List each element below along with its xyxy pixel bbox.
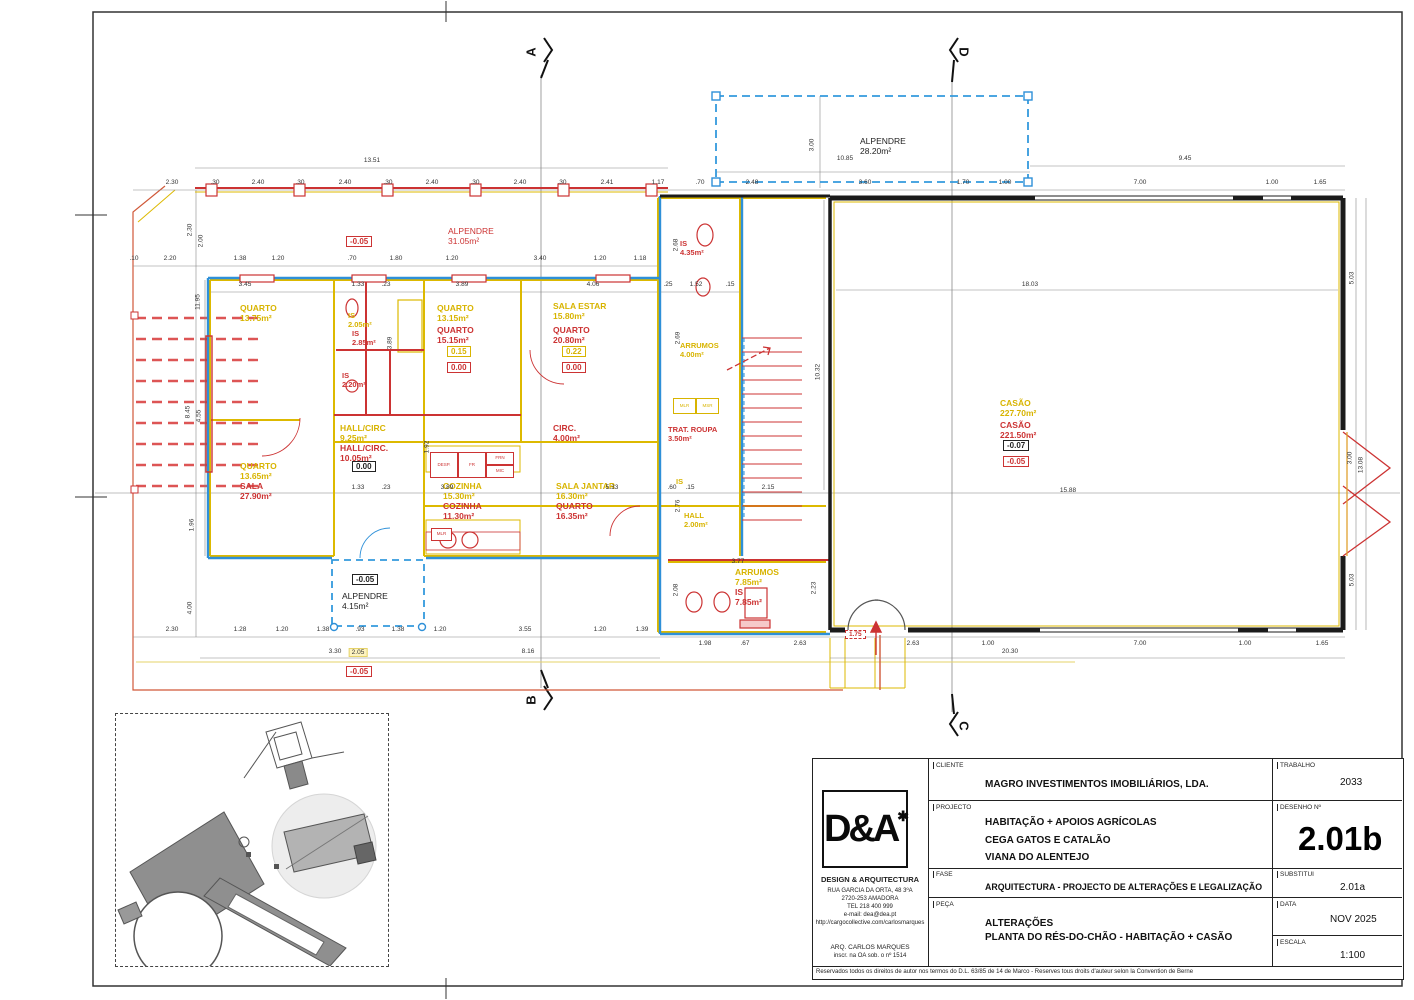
dim-left: 4.00 (187, 602, 194, 615)
window-frames-red (206, 184, 657, 282)
room-label-quarto-1515: QUARTO15.15m² (437, 325, 474, 345)
company-address-1: RUA GARCIA DA ORTA, 48 3ºA (812, 888, 928, 894)
dim-top: 1.00 (999, 179, 1012, 186)
room-label-alpendre-main: ALPENDRE31.05m² (448, 226, 494, 246)
section-marker-c: C (957, 721, 972, 730)
dim-bottom: 1.38 (392, 626, 405, 633)
dim-row3: .25 (663, 281, 672, 288)
dim-inner: 2.69 (675, 332, 682, 345)
field-label-cliente: CLIENTE (933, 762, 963, 769)
dim-overall-1803: 18.03 (1022, 281, 1038, 288)
field-escala: 1:100 (1340, 950, 1365, 961)
field-projecto-1: HABITAÇÃO + APOIOS AGRÍCOLAS (985, 817, 1157, 828)
section-marker-d: D (957, 47, 972, 56)
level-box-m005-a: -0.05 (1003, 456, 1029, 467)
room-label-is-785: IS7.85m² (735, 587, 762, 607)
dim-bottom: 1.98 (699, 640, 712, 647)
dim-mid: 1.33 (352, 484, 365, 491)
room-label-is-220: IS2.20m² (342, 372, 366, 390)
dim-inner: 2.68 (673, 239, 680, 252)
dim-inner: 3.89 (387, 337, 394, 350)
tag-mlr: MLR (673, 398, 696, 414)
field-data: NOV 2025 (1330, 914, 1377, 925)
dim-row3: 4.06 (587, 281, 600, 288)
field-substitui: 2.01a (1340, 882, 1365, 893)
dim-top: 1.65 (1314, 179, 1327, 186)
dim-row3: .23 (381, 281, 390, 288)
dim-bottom: 1.00 (1239, 640, 1252, 647)
drawing-sheet: A D B C QUARTO13.75m² IS2.05m² IS2.85m² … (0, 0, 1414, 1000)
dim-bottom: 1.65 (1316, 640, 1329, 647)
dim-top: .30 (210, 179, 219, 186)
tag-frn: FRN (486, 452, 514, 465)
company-name: DESIGN & ARQUITECTURA (812, 875, 928, 884)
architect-name: ARQ. CARLOS MARQUES (812, 944, 928, 951)
dim-row3: 3.89 (456, 281, 469, 288)
dim-inner: 2.76 (675, 500, 682, 513)
dim-top: 1.17 (652, 179, 665, 186)
room-label-is-small: IS (676, 478, 683, 487)
site-plan-drawing (116, 714, 388, 966)
dim-right: 13.08 (1358, 457, 1365, 473)
dim-bottom: .67 (740, 640, 749, 647)
room-label-quarto-1375: QUARTO13.75m² (240, 303, 277, 323)
dim-bottom: 1.38 (317, 626, 330, 633)
dim-mid: 5.33 (606, 484, 619, 491)
dim-bottom: 1.20 (276, 626, 289, 633)
room-label-casao-new: CASÃO221.50m² (1000, 420, 1036, 440)
dim-row2: 3.40 (534, 255, 547, 262)
level-box-m005-d: -0.05 (346, 666, 372, 677)
logo-star-icon: ✱ (897, 808, 906, 824)
tag-desp: DESP. (430, 452, 458, 478)
dim-top: .30 (383, 179, 392, 186)
dim-left: 2.30 (187, 224, 194, 237)
section-marker-b: B (524, 695, 539, 704)
dim-bottom: 1.28 (234, 626, 247, 633)
field-label-peca: PEÇA (933, 901, 954, 908)
room-label-alpendre-top: ALPENDRE28.20m² (860, 136, 906, 156)
field-peca-2: PLANTA DO RÉS-DO-CHÃO - HABITAÇÃO + CASÃ… (985, 932, 1232, 943)
tag-mlr-2: MLR (431, 528, 452, 541)
dim-right: 5.03 (1349, 272, 1356, 285)
company-logo: D&A✱ (822, 790, 908, 868)
dim-right: 3.00 (1347, 452, 1354, 465)
dim-inner: 10.32 (815, 364, 822, 380)
dim-inner: 1.92 (424, 441, 431, 454)
site-plan-inset (115, 713, 389, 967)
dim-overall-945: 9.45 (1179, 155, 1192, 162)
dim-top: 1.00 (1266, 179, 1279, 186)
dim-overall-1588: 15.88 (1060, 487, 1076, 494)
dim-bottom: 3.55 (519, 626, 532, 633)
level-box-000-c: 0.00 (352, 461, 376, 472)
tag-fr: FR (458, 452, 486, 478)
field-desenho-numero: 2.01b (1298, 820, 1382, 858)
dim-top: .30 (470, 179, 479, 186)
dim-top: 2.40 (514, 179, 527, 186)
company-phone: TEL 218 400 999 (812, 904, 928, 910)
dim-bottom: 1.20 (594, 626, 607, 633)
room-label-quarto-1365: QUARTO13.65m² (240, 461, 277, 481)
dim-top: 1.70 (957, 179, 970, 186)
level-box-000-b: 0.00 (562, 362, 586, 373)
dim-row2: 2.20 (164, 255, 177, 262)
room-label-quarto-2080: QUARTO20.80m² (553, 325, 590, 345)
dim-inner: 3.00 (809, 139, 816, 152)
room-label-sala-estar: SALA ESTAR15.80m² (553, 301, 606, 321)
dim-top: 2.48 (746, 179, 759, 186)
dim-bottom2: 20.30 (1002, 648, 1018, 655)
dim-bottom: 2.63 (794, 640, 807, 647)
dim-top: 2.30 (166, 179, 179, 186)
dim-mid: 3.89 (441, 484, 454, 491)
dim-mid: 2.15 (762, 484, 775, 491)
field-fase: ARQUITECTURA - PROJECTO DE ALTERAÇÕES E … (985, 882, 1262, 892)
dim-bottom2: 2.05 (349, 648, 368, 657)
dim-row2: .70 (347, 255, 356, 262)
dim-overall-1351: 13.51 (364, 157, 380, 164)
field-label-fase: FASE (933, 871, 953, 878)
room-label-circ: CIRC.4.00m² (553, 423, 580, 443)
field-label-desenho: DESENHO Nº (1277, 804, 1321, 811)
field-label-trabalho: TRABALHO (1277, 762, 1315, 769)
alpendre-dashed-blue (332, 96, 1028, 626)
room-label-cozinha-new: COZINHA11.30m² (443, 501, 482, 521)
walls-new-red (195, 188, 830, 560)
dim-row2: .10 (129, 255, 138, 262)
copyright-note: Reservados todos os direitos de autor no… (816, 969, 1193, 975)
room-label-trat-roupa: TRAT. ROUPA3.50m² (668, 426, 717, 444)
room-label-quarto-1635: QUARTO16.35m² (556, 501, 593, 521)
field-cliente: MAGRO INVESTIMENTOS IMOBILIÁRIOS, LDA. (985, 779, 1209, 790)
dim-bottom: 2.63 (907, 640, 920, 647)
dim-top: 7.00 (1134, 179, 1147, 186)
company-address-2: 2720-253 AMADORA (812, 896, 928, 902)
room-label-alpendre-small: ALPENDRE4.15m² (342, 591, 388, 611)
dim-left: 2.00 (198, 235, 205, 248)
dim-top: .30 (295, 179, 304, 186)
dim-top: 2.40 (339, 179, 352, 186)
dim-row3: 1.52 (690, 281, 703, 288)
dim-box-175: 1.75 (845, 630, 866, 639)
dim-left: 4.55 (196, 410, 203, 423)
dim-top: 2.40 (252, 179, 265, 186)
dim-bottom: 7.00 (1134, 640, 1147, 647)
room-label-is-205: IS2.05m² (348, 312, 372, 330)
room-label-is-285: IS2.85m² (352, 330, 376, 348)
field-label-data: DATA (1277, 901, 1296, 908)
dim-row3: 3.45 (239, 281, 252, 288)
dim-top: 3.60 (859, 179, 872, 186)
field-projecto-3: VIANA DO ALENTEJO (985, 852, 1089, 863)
dim-row2: 1.20 (272, 255, 285, 262)
room-label-quarto-1315: QUARTO13.15m² (437, 303, 474, 323)
room-label-sala-2790: SALA27.90m² (240, 481, 272, 501)
dim-row3: 1.33 (352, 281, 365, 288)
field-label-projecto: PROJECTO (933, 804, 971, 811)
room-label-hall: HALL2.00m² (684, 512, 708, 530)
casao-windows (1035, 196, 1296, 632)
dim-bottom2: 8.16 (522, 648, 535, 655)
dim-mid: .60 (667, 484, 676, 491)
company-email: e-mail: dea@dea.pt (812, 912, 928, 918)
dim-inner: 2.23 (811, 582, 818, 595)
dim-bottom: 1.39 (636, 626, 649, 633)
level-box-015: 0.15 (447, 346, 471, 357)
dim-left: 8.45 (185, 406, 192, 419)
dim-bottom2: 3.30 (329, 648, 342, 655)
dim-row2: 1.80 (390, 255, 403, 262)
dim-mid: .15 (685, 484, 694, 491)
level-box-m005-b: -0.05 (346, 236, 372, 247)
room-label-arrumos-785: ARRUMOS7.85m² (735, 567, 779, 587)
room-label-hallcirc-old: HALL/CIRC9.25m² (340, 423, 386, 443)
level-box-000-a: 0.00 (447, 362, 471, 373)
dim-top: .30 (557, 179, 566, 186)
dim-top: 2.41 (601, 179, 614, 186)
dim-row3: .15 (725, 281, 734, 288)
architect-reg: inscr. na OA sob. o nº 1514 (812, 953, 928, 959)
level-box-m007: -0.07 (1003, 440, 1029, 451)
tag-mic: MIC (486, 465, 514, 478)
field-peca-1: ALTERAÇÕES (985, 918, 1053, 929)
level-box-m005-c: -0.05 (352, 574, 378, 585)
dim-row2: 1.38 (234, 255, 247, 262)
dim-bottom: .93 (355, 626, 364, 633)
dim-bottom: 2.30 (166, 626, 179, 633)
dim-mid: .23 (381, 484, 390, 491)
room-label-arrumos-400: ARRUMOS4.00m² (680, 342, 719, 360)
site-small-structure (284, 761, 308, 789)
dim-right: 5.03 (1349, 574, 1356, 587)
dim-row2: 1.20 (594, 255, 607, 262)
dim-top: 2.40 (426, 179, 439, 186)
dim-left: 1.96 (189, 519, 196, 532)
room-label-is-435: IS4.35m² (680, 240, 704, 258)
company-url: http://cargocollective.com/carlosmarques (812, 920, 928, 926)
dim-bottom: 1.00 (982, 640, 995, 647)
room-label-casao-old: CASÃO227.70m² (1000, 398, 1036, 418)
dim-overall-1085: 10.85 (837, 155, 853, 162)
level-box-022: 0.22 (562, 346, 586, 357)
field-trabalho: 2033 (1340, 777, 1362, 788)
dim-row2: 1.20 (446, 255, 459, 262)
dim-inner: 2.08 (673, 584, 680, 597)
field-label-escala: ESCALA (1277, 939, 1306, 946)
field-projecto-2: CEGA GATOS E CATALÃO (985, 835, 1111, 846)
field-label-substitui: SUBSTITUI (1277, 871, 1314, 878)
dim-row2: 1.18 (634, 255, 647, 262)
section-marker-a: A (524, 47, 539, 56)
dim-inner: 3.77 (732, 558, 745, 565)
tag-msr: MSR (696, 398, 719, 414)
dim-bottom: 1.20 (434, 626, 447, 633)
dim-left: 11.95 (195, 294, 202, 310)
dim-top: .70 (695, 179, 704, 186)
